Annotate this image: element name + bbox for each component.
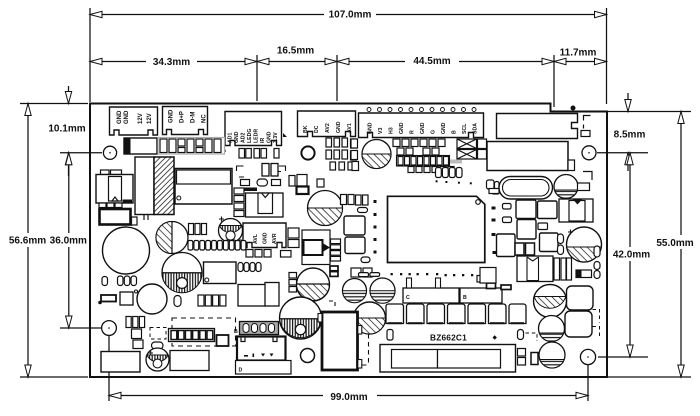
svg-text:42.0mm: 42.0mm <box>613 250 650 261</box>
svg-text:D: D <box>239 368 243 374</box>
svg-text:G: G <box>431 130 437 134</box>
svg-text:GND: GND <box>441 122 447 134</box>
svg-text:16.5mm: 16.5mm <box>277 46 314 57</box>
svg-text:12V: 12V <box>147 113 153 124</box>
svg-text:D+P: D+P <box>180 111 186 123</box>
svg-text:GND: GND <box>420 122 426 134</box>
svg-text:AD1: AD1 <box>228 133 234 143</box>
svg-text:11.7mm: 11.7mm <box>560 48 597 59</box>
svg-text:V3: V3 <box>378 128 384 134</box>
svg-text:GND: GND <box>267 131 273 143</box>
svg-text:AD2: AD2 <box>241 133 247 143</box>
svg-text:3.3V: 3.3V <box>273 132 279 143</box>
svg-text:AVR: AVR <box>272 233 278 244</box>
svg-text:D-M: D-M <box>191 112 197 123</box>
svg-text:99.0mm: 99.0mm <box>330 392 367 403</box>
svg-text:B: B <box>463 295 467 301</box>
svg-text:SDA: SDA <box>473 123 479 134</box>
svg-text:56.6mm: 56.6mm <box>9 236 46 247</box>
svg-text:R: R <box>410 130 416 134</box>
svg-text:IR: IR <box>260 138 266 143</box>
svg-text:GND: GND <box>234 131 240 143</box>
svg-text:C: C <box>406 295 410 301</box>
svg-text:GND: GND <box>117 110 123 124</box>
svg-text:AV1: AV1 <box>347 123 353 133</box>
svg-text:8.5mm: 8.5mm <box>614 130 646 141</box>
svg-text:GND: GND <box>169 109 175 123</box>
svg-text:AVL: AVL <box>253 233 259 244</box>
svg-text:LEDG: LEDG <box>247 129 253 143</box>
svg-text:GND: GND <box>263 232 269 244</box>
svg-text:NC: NC <box>202 114 208 123</box>
svg-text:36.0mm: 36.0mm <box>50 236 87 247</box>
svg-text:44.5mm: 44.5mm <box>413 56 450 67</box>
svg-text:H3: H3 <box>389 127 395 134</box>
svg-text:DC: DC <box>314 125 320 133</box>
svg-text:107.0mm: 107.0mm <box>329 10 372 21</box>
svg-text:GND: GND <box>368 122 374 134</box>
svg-text:AV2: AV2 <box>325 123 331 133</box>
svg-text:34.3mm: 34.3mm <box>153 57 190 68</box>
svg-text:B: B <box>234 329 238 335</box>
svg-text:SCL: SCL <box>462 123 468 134</box>
svg-text:GND: GND <box>399 122 405 134</box>
svg-text:B: B <box>452 130 458 134</box>
svg-text:BK: BK <box>303 125 309 133</box>
svg-text:GND: GND <box>124 110 130 124</box>
svg-text:GND: GND <box>336 121 342 133</box>
svg-text:12V: 12V <box>138 113 144 124</box>
svg-text:10.1mm: 10.1mm <box>48 124 85 135</box>
svg-text:BZ662C1: BZ662C1 <box>430 333 467 343</box>
svg-text:55.0mm: 55.0mm <box>656 238 693 249</box>
svg-text:LEDR: LEDR <box>254 129 260 143</box>
